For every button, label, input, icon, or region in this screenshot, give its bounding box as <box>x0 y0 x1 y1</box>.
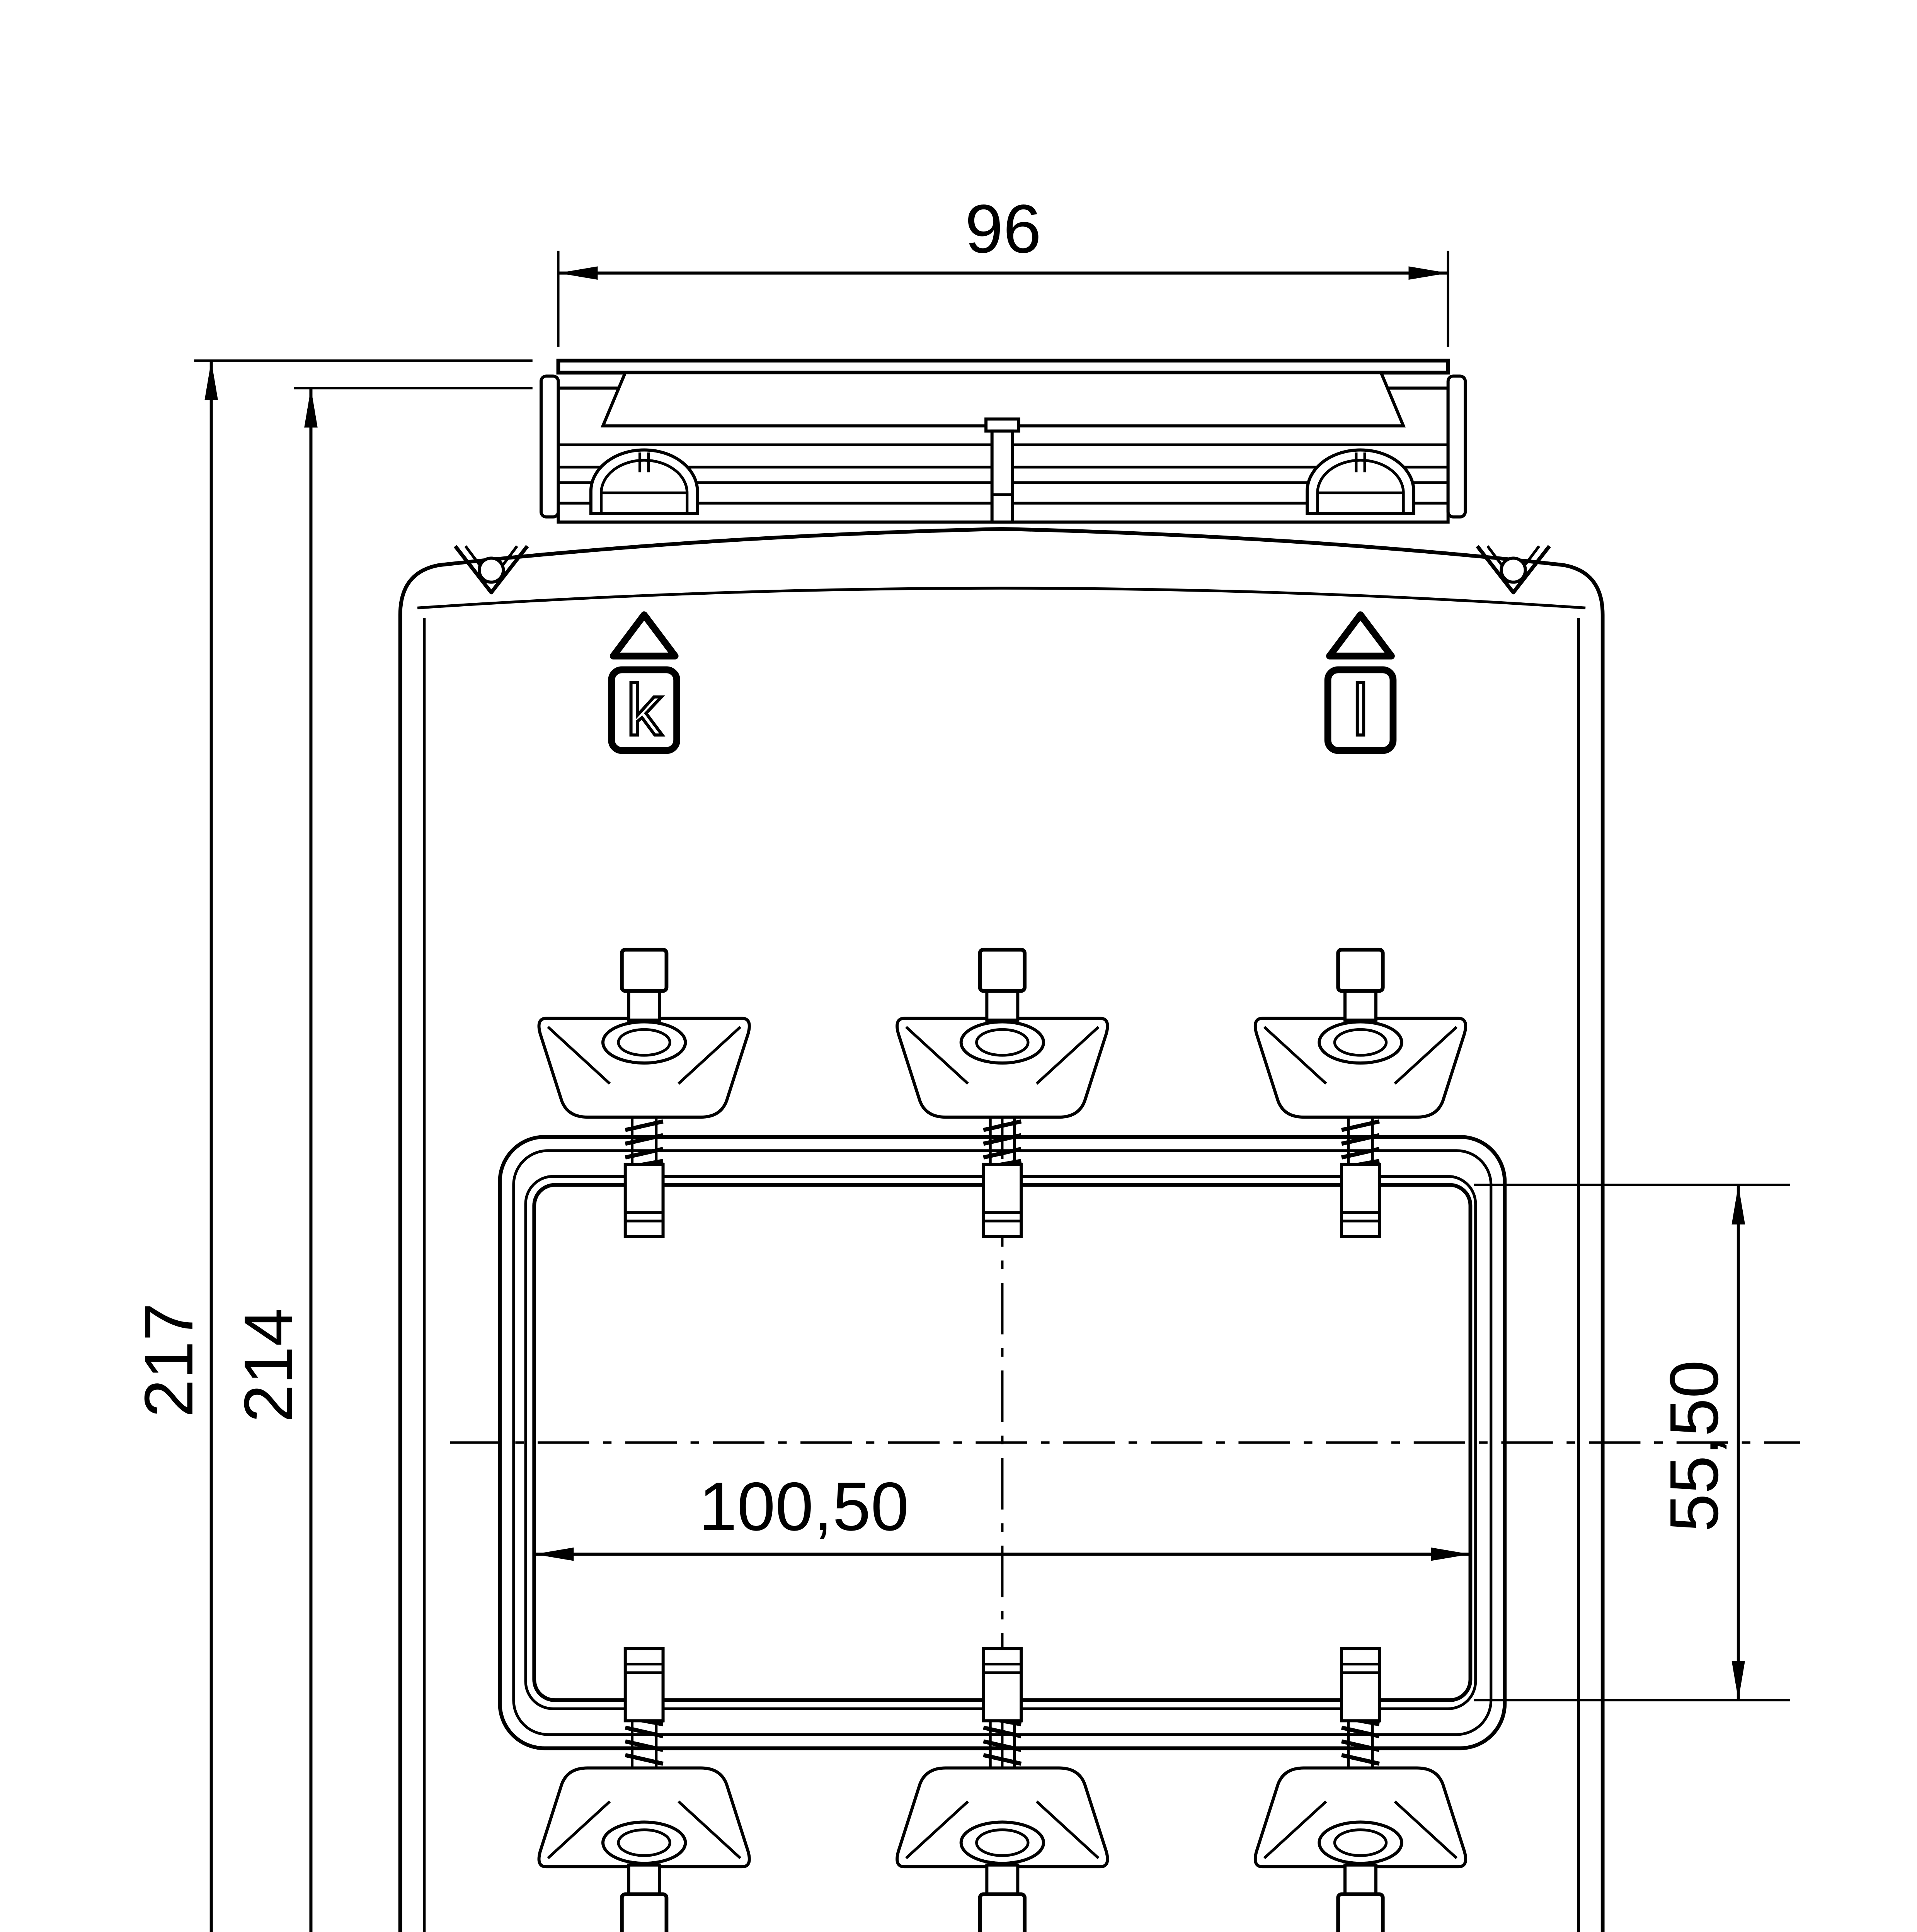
rail-top-plate <box>558 361 1448 372</box>
rail-center-divider <box>992 431 1013 522</box>
top-terminal-rail <box>541 361 1465 522</box>
dimension-value: 96 <box>965 190 1042 267</box>
marker-letter-k: k <box>626 670 662 750</box>
drawing-page: k l K - P1 C E Made in Europe V <box>0 0 1917 1932</box>
rail-center-divider-cap <box>986 419 1018 431</box>
dimension-value: 55,50 <box>1655 1360 1732 1532</box>
rail-endcap-right <box>1448 376 1465 517</box>
dimension-value: 100,50 <box>699 1468 909 1545</box>
marker-letter-l: l <box>1352 670 1368 750</box>
rail-endcap-left <box>541 376 558 517</box>
technical-drawing-current-transformer: k l K - P1 C E Made in Europe V <box>0 0 1917 1932</box>
dimension-value: 214 <box>230 1308 307 1423</box>
dimension-rail-width-96: 96 <box>558 190 1448 347</box>
dimension-value: 217 <box>130 1303 207 1418</box>
